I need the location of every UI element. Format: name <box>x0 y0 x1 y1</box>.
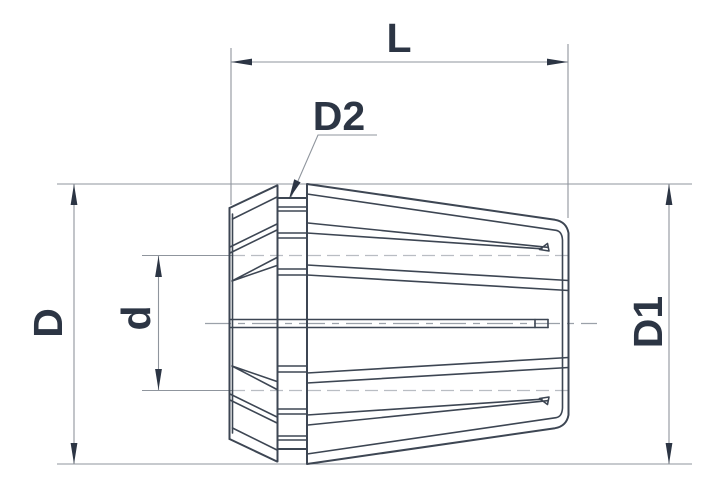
dimension-label-D2: D2 <box>313 93 365 139</box>
reference-lines <box>205 256 597 391</box>
arrow-d-top <box>155 256 162 277</box>
arrow-D-top <box>71 184 78 205</box>
rear-taper-bottom-chamfer <box>233 428 278 450</box>
dimension-label-L: L <box>386 15 411 61</box>
arrow-L-left <box>231 59 252 66</box>
drawing-canvas: L D2 D d D1 <box>0 0 724 488</box>
rear-taper-slit-wedge-lower <box>232 366 277 390</box>
dimension-label-D: D <box>25 308 71 338</box>
rear-taper-top-edge <box>230 186 278 209</box>
cone-slit-wedge-upper <box>307 223 548 249</box>
arrow-D2-leader <box>289 179 301 199</box>
cone-slit-band-upper <box>307 265 569 291</box>
cone-slit-wedge-lower <box>307 399 548 425</box>
arrow-d-bottom <box>155 369 162 390</box>
arrow-L-right <box>547 59 568 66</box>
dimension-lines <box>74 62 669 464</box>
dimension-label-d: d <box>113 305 159 330</box>
rear-taper-slit-upper <box>230 224 277 253</box>
arrow-D-bottom <box>71 443 78 464</box>
rear-taper-slit-wedge-upper <box>232 258 277 282</box>
rear-taper-slit-lower <box>230 394 277 423</box>
collet-technical-drawing: L D2 D d D1 <box>0 0 724 488</box>
arrowheads <box>71 59 673 464</box>
dimension-labels: L D2 D d D1 <box>25 15 671 348</box>
rear-taper-top-chamfer <box>233 197 278 219</box>
rear-taper-bottom-edge <box>230 439 278 462</box>
cone-slit-band-lower <box>307 358 569 384</box>
arrow-D1-top <box>666 184 673 205</box>
arrow-D1-bottom <box>666 443 673 464</box>
extension-lines <box>57 44 692 464</box>
dimension-label-D1: D1 <box>625 296 671 348</box>
